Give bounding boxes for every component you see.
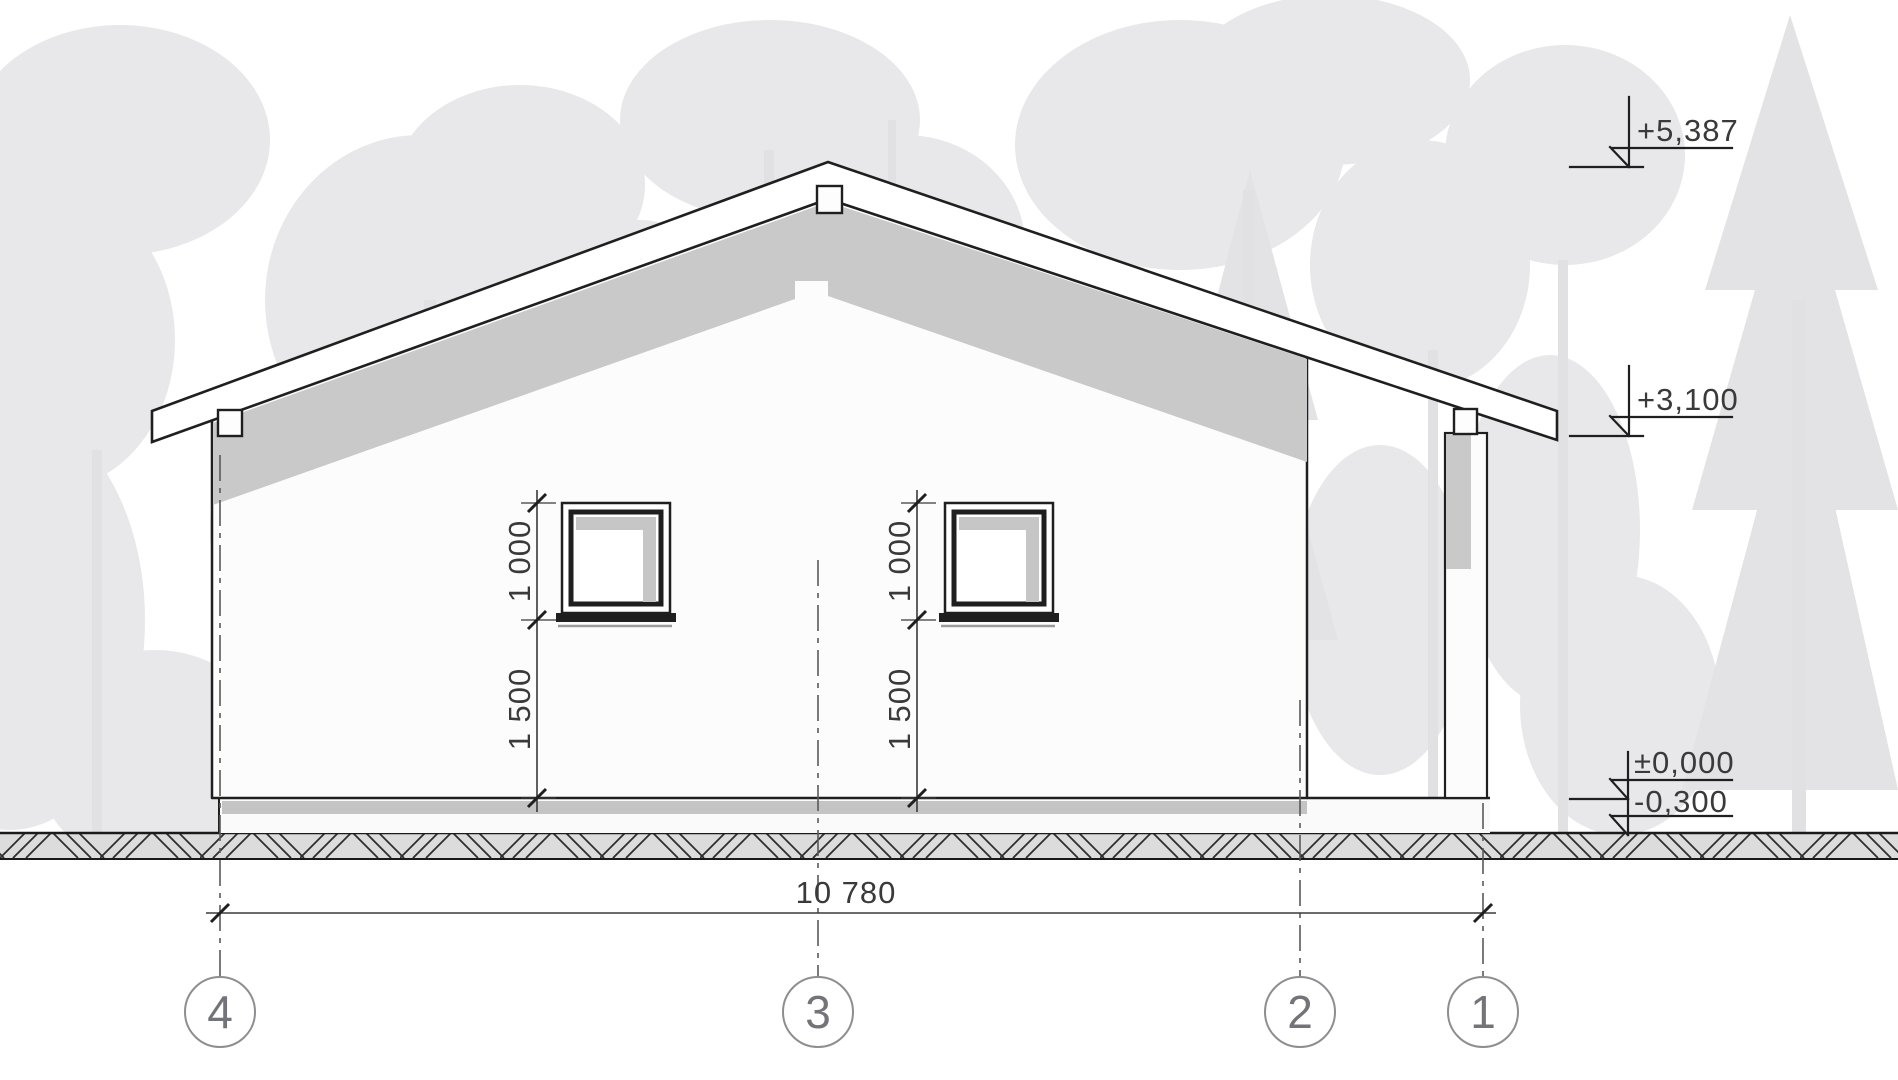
elevation-drawing-canvas: 1 000 1 500 1 000 1 500 10 780 (0, 0, 1898, 1080)
window-sill (939, 613, 1059, 622)
window-sill (556, 613, 676, 622)
axis-bubble-3: 3 (783, 977, 853, 1047)
porch-column (1445, 433, 1487, 798)
axis-number-2: 2 (1287, 986, 1313, 1038)
dim-window-height-left: 1 000 (502, 520, 537, 603)
axis-number-4: 4 (207, 986, 233, 1038)
dim-sill-height-left: 1 500 (502, 668, 537, 751)
column-shadow (1446, 434, 1471, 569)
level-ridge-label: +5,387 (1637, 113, 1739, 148)
purlin-ridge (817, 186, 842, 213)
level-floor-label: ±0,000 (1634, 745, 1735, 780)
window-left (556, 503, 676, 626)
dim-overall-width-label: 10 780 (796, 875, 897, 910)
ground-section (0, 833, 1898, 859)
level-ground-label: -0,300 (1634, 784, 1728, 819)
glass-shadow-right (1026, 517, 1039, 602)
axis-bubble-4: 4 (185, 977, 255, 1047)
below-grade-mask (0, 859, 1898, 1080)
level-eaves-label: +3,100 (1637, 382, 1739, 417)
dim-window-height-right: 1 000 (882, 520, 917, 603)
window-right (939, 503, 1059, 626)
axis-number-3: 3 (805, 986, 831, 1038)
purlin-left (218, 410, 242, 436)
dim-sill-height-right: 1 500 (882, 668, 917, 751)
axis-number-1: 1 (1470, 986, 1496, 1038)
axis-bubble-1: 1 (1448, 977, 1518, 1047)
purlin-right (1454, 409, 1477, 434)
glass-shadow-right (643, 517, 656, 602)
axis-bubble-2: 2 (1265, 977, 1335, 1047)
